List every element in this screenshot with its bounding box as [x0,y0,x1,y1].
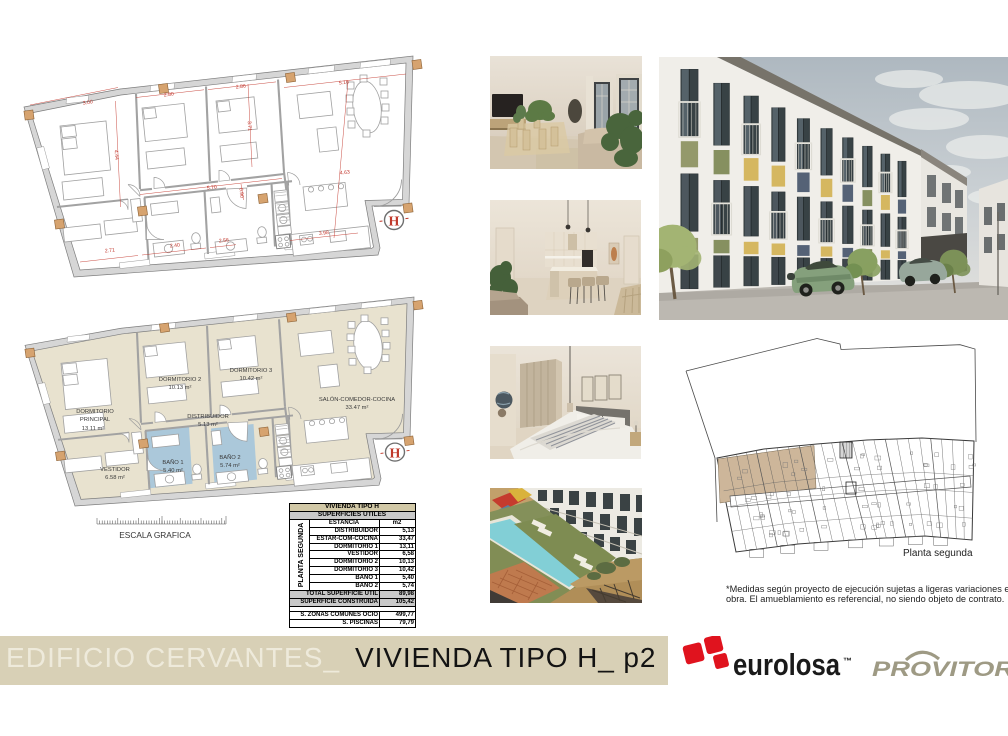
svg-text:BAÑO 2: BAÑO 2 [219,454,240,461]
svg-text:13.11 m²: 13.11 m² [82,426,105,432]
svg-text:33.47 m²: 33.47 m² [346,405,369,411]
svg-text:PROVITOR: PROVITOR [872,658,1008,681]
svg-text:PRINCIPAL: PRINCIPAL [80,417,111,423]
svg-text:BAÑO 1: BAÑO 1 [162,459,183,466]
svg-text:PLANTA SEGUNDA: PLANTA SEGUNDA [298,523,305,588]
svg-text:VESTIDOR: VESTIDOR [100,467,130,473]
svg-text:DORMITORIO 2: DORMITORIO 2 [159,377,201,383]
svg-text:5.74 m²: 5.74 m² [220,463,240,469]
svg-text:DORMITORIO: DORMITORIO [76,409,114,415]
svg-text:™: ™ [843,656,852,666]
svg-text:5.13 m²: 5.13 m² [198,422,218,428]
svg-text:10.13 m²: 10.13 m² [169,385,192,391]
svg-text:10.42 m²: 10.42 m² [240,376,263,382]
svg-text:ESCALA GRAFICA: ESCALA GRAFICA [119,530,191,540]
svg-text:5.40 m²: 5.40 m² [163,468,183,474]
svg-text:DORMITORIO 3: DORMITORIO 3 [230,368,272,374]
svg-text:DISTRIBUIDOR: DISTRIBUIDOR [187,414,229,420]
svg-text:SALÓN-COMEDOR-COCINA: SALÓN-COMEDOR-COCINA [319,396,395,403]
svg-text:6.58 m²: 6.58 m² [105,475,125,481]
svg-text:eurolosa: eurolosa [733,647,841,682]
